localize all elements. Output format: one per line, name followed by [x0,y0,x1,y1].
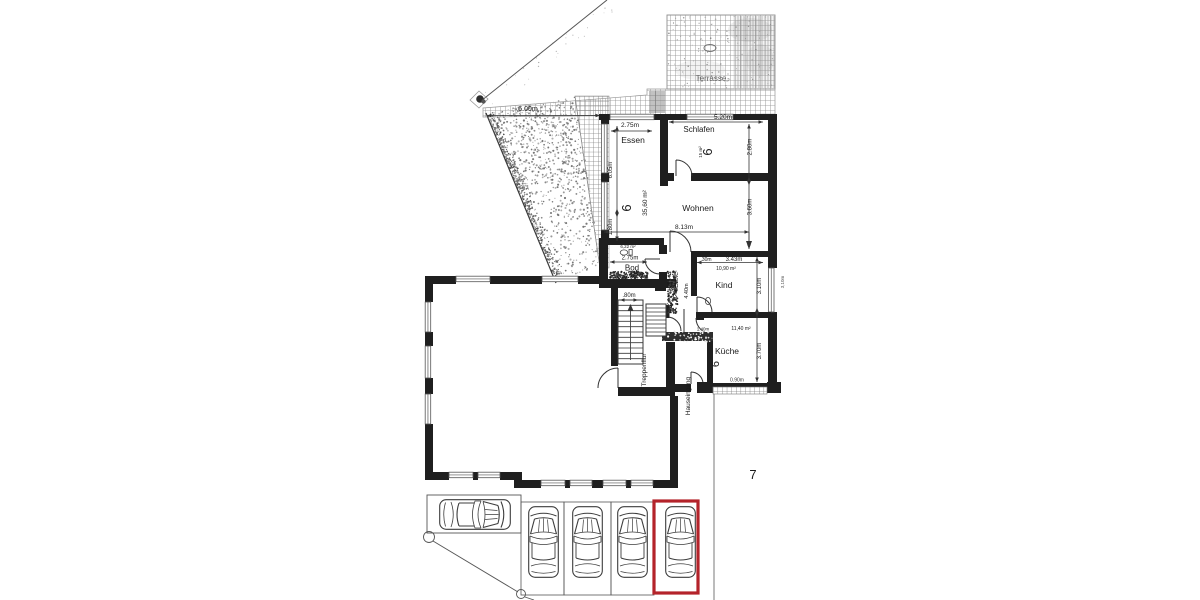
svg-text:3.10m: 3.10m [757,278,763,295]
svg-text:3.43m: 3.43m [726,257,743,263]
svg-text:Treppenflur: Treppenflur [641,353,648,387]
svg-text:3,10m: 3,10m [780,275,785,288]
svg-text:6: 6 [710,361,722,367]
svg-text:3.60m: 3.60m [748,199,754,216]
svg-text:11,40 m²: 11,40 m² [731,326,751,332]
svg-text:15 m²: 15 m² [698,146,703,158]
svg-text:6.00m: 6.00m [518,106,538,113]
svg-text:35,60 m²: 35,60 m² [642,189,649,215]
svg-text:Schlafen: Schlafen [683,125,714,134]
svg-text:Wohnen: Wohnen [682,203,714,213]
svg-text:4.40m: 4.40m [684,283,690,299]
svg-text:Hauseingang: Hauseingang [685,376,692,415]
svg-text:6,22 m²: 6,22 m² [620,244,636,249]
svg-text:Terrasse: Terrasse [696,74,727,83]
svg-text:6.05m: 6.05m [608,162,614,179]
svg-text:1.40m: 1.40m [697,327,710,332]
svg-text:Kind: Kind [715,280,732,290]
svg-text:7: 7 [749,467,756,482]
svg-text:Essen: Essen [621,135,645,145]
svg-text:8.13m: 8.13m [675,224,693,231]
svg-text:.30m: .30m [700,257,711,263]
svg-text:Küche: Küche [715,346,739,356]
svg-text:5.20m: 5.20m [714,114,732,121]
svg-text:2.75m: 2.75m [621,122,639,129]
svg-text:.80m: .80m [622,293,635,299]
svg-text:10,90 m²: 10,90 m² [716,266,736,272]
svg-text:2.80m: 2.80m [748,139,754,156]
svg-text:1.80m: 1.80m [608,219,614,236]
svg-text:3.70m: 3.70m [757,343,763,360]
svg-text:2.75m: 2.75m [622,256,639,262]
svg-text:6: 6 [619,204,634,211]
svg-text:0.90m: 0.90m [730,378,744,384]
